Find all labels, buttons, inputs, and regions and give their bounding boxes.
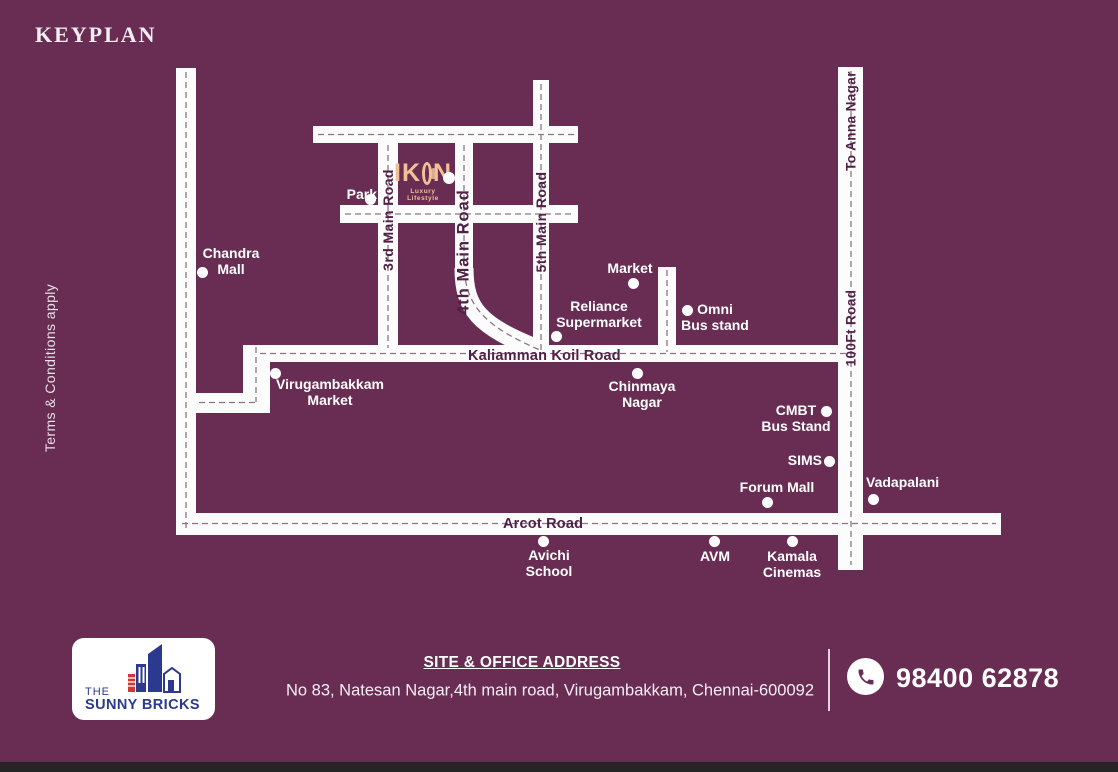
landmark-dot-vadapalani xyxy=(868,494,879,505)
phone-number: 98400 62878 xyxy=(896,663,1059,694)
company-logo-card: THE SUNNY BRICKS xyxy=(72,638,215,720)
landmark-dot-forum-mall xyxy=(762,497,773,508)
landmark-label-reliance-supermarket: Reliance Supermarket xyxy=(552,299,646,330)
keyplan-flyer: KEYPLAN Terms & Conditions apply xyxy=(0,0,1118,772)
landmark-dot-sims xyxy=(824,456,835,467)
landmark-label-market: Market xyxy=(600,261,660,277)
phone-icon xyxy=(847,658,884,695)
landmark-dot-market xyxy=(628,278,639,289)
landmark-label-chinmaya-nagar: Chinmaya Nagar xyxy=(598,379,686,410)
landmark-label-forum-mall: Forum Mall xyxy=(735,480,819,496)
road-label-5th-main-road: 5th Main Road xyxy=(533,172,549,273)
footer-divider xyxy=(828,649,830,711)
site-address-text: No 83, Natesan Nagar,4th main road, Viru… xyxy=(286,682,814,701)
landmark-label-cmbt-bus-stand: CMBT Bus Stand xyxy=(758,403,834,434)
brand-name-sunny-bricks: SUNNY BRICKS xyxy=(85,698,200,714)
landmark-label-vadapalani: Vadapalani xyxy=(866,475,956,491)
landmark-dot-kamala-cinemas xyxy=(787,536,798,547)
landmark-label-avm: AVM xyxy=(692,549,738,565)
landmark-label-park: Park xyxy=(325,187,377,203)
site-address-heading: SITE & OFFICE ADDRESS xyxy=(424,654,621,672)
phone-handset-glyph xyxy=(856,667,876,687)
road-label-arcot-road: Arcot Road xyxy=(503,516,583,532)
brand-name: THE SUNNY BRICKS xyxy=(85,686,200,714)
landmark-label-kamala-cinemas: Kamala Cinemas xyxy=(754,549,830,580)
ikon-o-ring-icon xyxy=(422,162,432,185)
landmark-dot-avm xyxy=(709,536,720,547)
ikon-tagline: Luxury Lifestyle xyxy=(394,188,452,202)
landmark-label-virugambakkam-market: Virugambakkam Market xyxy=(270,377,390,408)
landmark-dot-reliance-supermarket xyxy=(551,331,562,342)
road-label-100ft-road: 100Ft Road xyxy=(844,290,859,367)
road-4th-main-curve xyxy=(464,268,540,350)
landmark-label-omni-bus-stand: Omni Bus stand xyxy=(680,302,750,333)
landmark-label-sims: SIMS xyxy=(770,453,822,469)
site-location-dot xyxy=(443,172,455,184)
landmark-label-avichi-school: Avichi School xyxy=(515,548,583,579)
road-label-to-anna-nagar: To Anna Nagar xyxy=(844,71,859,171)
landmark-label-chandra-mall: Chandra Mall xyxy=(193,246,269,277)
bottom-bar xyxy=(0,762,1118,772)
road-label-kaliamman-koil-road: Kaliamman Koil Road xyxy=(468,348,621,364)
road-label-4th-main-road: 4th Main Road xyxy=(455,189,474,315)
landmark-dot-avichi-school xyxy=(538,536,549,547)
